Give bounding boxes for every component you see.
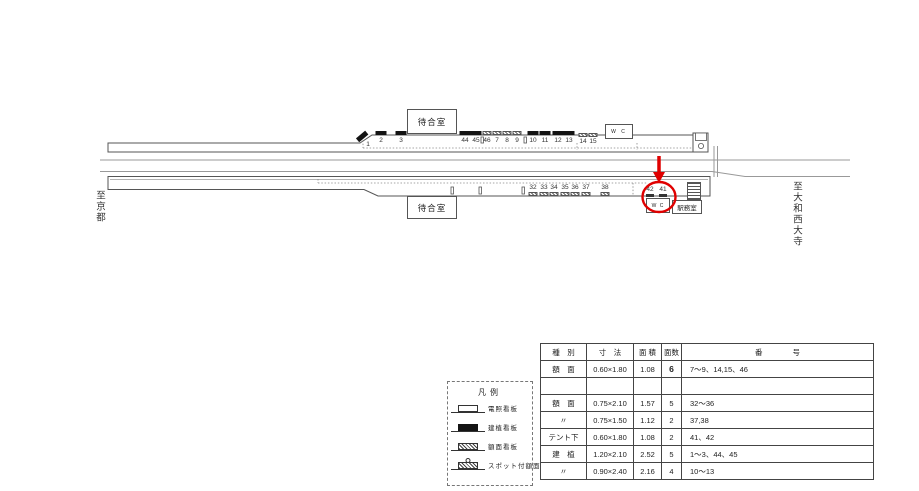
table-cell: 1～3、44、45 — [682, 446, 874, 463]
platform-post — [522, 187, 525, 194]
table-cell: 7～9、14,15、46 — [682, 361, 874, 378]
sign-marker-36 — [571, 192, 580, 196]
sign-marker-8 — [503, 131, 512, 135]
sign-number-34: 34 — [550, 185, 557, 192]
legend-item: スポット付額面 — [448, 455, 532, 474]
wc-room-bottom: W C — [646, 198, 670, 213]
sign-marker-14 — [579, 133, 588, 137]
sign-marker-11 — [540, 131, 551, 136]
sign-number-45: 45 — [472, 138, 479, 145]
sign-number-36: 36 — [571, 185, 578, 192]
table-cell: 10～13 — [682, 463, 874, 480]
spot-sign-icon — [448, 457, 488, 473]
table-cell: 額 面 — [541, 361, 587, 378]
table-cell: 0.60×1.80 — [587, 429, 634, 446]
platform-post — [451, 187, 454, 194]
table-row: 建 植1.20×2.102.5251～3、44、45 — [541, 446, 874, 463]
table-cell: 2 — [662, 412, 682, 429]
sign-marker-38 — [601, 192, 610, 196]
sign-marker-41 — [659, 194, 667, 197]
sign-number-44: 44 — [461, 138, 468, 145]
sign-number-14: 14 — [579, 139, 586, 146]
table-cell: 額 面 — [541, 395, 587, 412]
sign-number-38: 38 — [601, 185, 608, 192]
legend-item-label: 建植看板 — [488, 422, 518, 432]
table-header-row: 種 別寸 法面 積面数番 号 — [541, 344, 874, 361]
direction-label-kyoto: 至京都 — [92, 190, 106, 223]
legend-item: 建植看板 — [448, 417, 532, 436]
table-cell: 1.57 — [634, 395, 662, 412]
table-cell: 32～36 — [682, 395, 874, 412]
wc-top-label: W C — [611, 129, 627, 135]
sign-number-2: 2 — [379, 138, 383, 145]
sign-marker-9 — [513, 131, 522, 135]
table-cell: 1.12 — [634, 412, 662, 429]
table-cell: 〃 — [541, 463, 587, 480]
waiting-room-bottom-label: 待合室 — [418, 202, 447, 214]
legend-title: 凡例 — [448, 387, 532, 398]
table-cell: 41、42 — [682, 429, 874, 446]
platform-end-circle — [698, 143, 703, 148]
table-cell: 1.08 — [634, 361, 662, 378]
direction-label-yamato-saidaiji: 至大和西大寺 — [789, 181, 803, 247]
sign-marker-42 — [646, 194, 654, 197]
sign-marker-34 — [550, 192, 559, 196]
table-header-cell: 種 別 — [541, 344, 587, 361]
sign-number-12: 12 — [554, 138, 561, 145]
sign-number-15: 15 — [589, 139, 596, 146]
sign-number-35: 35 — [561, 185, 568, 192]
waiting-room-bottom: 待合室 — [407, 196, 457, 219]
sign-number-3: 3 — [399, 138, 403, 145]
table-header-cell: 寸 法 — [587, 344, 634, 361]
sign-marker-37 — [582, 192, 591, 196]
station-office-label: 駅務室 — [677, 202, 697, 212]
table-cell — [587, 378, 634, 395]
platform-post — [479, 187, 482, 194]
sign-marker-32 — [529, 192, 538, 196]
table-header-cell: 面数 — [662, 344, 682, 361]
table-cell — [662, 378, 682, 395]
table-cell: 建 植 — [541, 446, 587, 463]
gakumen-sign-icon — [448, 438, 488, 454]
table-cell: テント下 — [541, 429, 587, 446]
sign-number-1: 1 — [366, 142, 370, 149]
sign-marker-45 — [471, 131, 482, 136]
table-cell: 1.20×2.10 — [587, 446, 634, 463]
table-cell: 2 — [662, 429, 682, 446]
sign-number-10: 10 — [529, 138, 536, 145]
sign-marker-12 — [553, 131, 564, 136]
platform-post — [524, 137, 527, 143]
legend-item-label: 電照看板 — [488, 403, 518, 413]
legend-item-label: 額面看板 — [488, 441, 518, 451]
denso-sign-icon — [448, 400, 488, 416]
sign-number-37: 37 — [582, 185, 589, 192]
table-cell: 2.52 — [634, 446, 662, 463]
station-ad-location-map: 待合室 待合室 W C W C 駅務室 至京都 至大和西大寺 123444546… — [0, 0, 919, 491]
legend-item: 電照看板 — [448, 398, 532, 417]
sign-number-9: 9 — [515, 138, 519, 145]
table-header-cell: 番 号 — [682, 344, 874, 361]
sign-number-32: 32 — [529, 185, 536, 192]
table-row: 額 面0.60×1.801.0867～9、14,15、46 — [541, 361, 874, 378]
track-line-lower — [100, 172, 850, 177]
table-cell: 0.90×2.40 — [587, 463, 634, 480]
sign-marker-13 — [564, 131, 575, 136]
table-cell: 5 — [662, 395, 682, 412]
table-cell: 4 — [662, 463, 682, 480]
kenchoku-sign-icon — [448, 419, 488, 435]
waiting-room-top-label: 待合室 — [418, 116, 447, 128]
wc-bottom-label: W C — [652, 203, 665, 209]
table-cell: 0.75×2.10 — [587, 395, 634, 412]
sign-number-8: 8 — [505, 138, 509, 145]
table-cell — [634, 378, 662, 395]
sign-marker-33 — [540, 192, 549, 196]
legend-item-label: スポット付額面 — [488, 460, 541, 470]
waiting-room-top: 待合室 — [407, 109, 457, 134]
table-row — [541, 378, 874, 395]
table-cell: 〃 — [541, 412, 587, 429]
sign-marker-2 — [376, 131, 387, 136]
sign-marker-3 — [396, 131, 407, 136]
station-office: 駅務室 — [672, 200, 702, 214]
sign-number-41: 41 — [659, 187, 666, 194]
sign-number-13: 13 — [565, 138, 572, 145]
table-header-cell: 面 積 — [634, 344, 662, 361]
table-cell: 2.16 — [634, 463, 662, 480]
sign-spec-table: 種 別寸 法面 積面数番 号額 面0.60×1.801.0867～9、14,15… — [540, 343, 874, 480]
sign-number-11: 11 — [542, 138, 549, 145]
table-row: テント下0.60×1.801.08241、42 — [541, 429, 874, 446]
sign-number-33: 33 — [540, 185, 547, 192]
table-cell: 0.75×1.50 — [587, 412, 634, 429]
stairs-hatch — [687, 182, 701, 200]
wc-room-top: W C — [605, 124, 633, 139]
table-cell: 1.08 — [634, 429, 662, 446]
legend-item: 額面看板 — [448, 436, 532, 455]
sign-marker-35 — [561, 192, 570, 196]
sign-number-42: 42 — [646, 187, 653, 194]
platform-end-hut — [696, 133, 707, 141]
table-cell — [682, 378, 874, 395]
sign-number-7: 7 — [495, 138, 499, 145]
sign-marker-44 — [460, 131, 471, 136]
table-row: 〃0.90×2.402.16410～13 — [541, 463, 874, 480]
sign-marker-7 — [493, 131, 502, 135]
table-cell: 5 — [662, 446, 682, 463]
table-cell — [541, 378, 587, 395]
table-row: 額 面0.75×2.101.57532～36 — [541, 395, 874, 412]
sign-number-46: 46 — [483, 138, 490, 145]
table-cell: 37,38 — [682, 412, 874, 429]
table-cell: 0.60×1.80 — [587, 361, 634, 378]
sign-marker-46 — [483, 131, 492, 135]
sign-marker-15 — [589, 133, 598, 137]
table-cell: 6 — [662, 361, 682, 378]
table-row: 〃0.75×1.501.12237,38 — [541, 412, 874, 429]
legend-box: 凡例 電照看板建植看板額面看板スポット付額面 — [447, 381, 533, 486]
sign-marker-10 — [528, 131, 539, 136]
